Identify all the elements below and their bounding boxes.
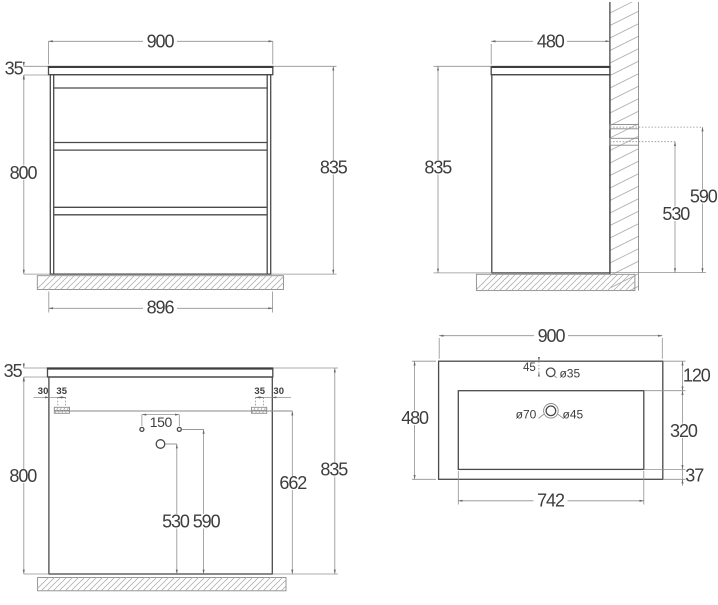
svg-text:35: 35	[254, 386, 265, 397]
svg-text:530 590: 530 590	[162, 512, 220, 532]
svg-text:900: 900	[147, 32, 175, 52]
svg-text:896: 896	[147, 298, 175, 318]
svg-text:742: 742	[537, 491, 565, 511]
svg-text:ø35: ø35	[559, 367, 580, 381]
svg-text:480: 480	[537, 32, 565, 52]
svg-text:ø70: ø70	[516, 407, 537, 421]
svg-text:662: 662	[279, 473, 307, 493]
svg-text:800: 800	[9, 466, 37, 486]
svg-text:800: 800	[10, 163, 38, 183]
svg-text:480: 480	[401, 408, 429, 428]
svg-text:590: 590	[690, 186, 718, 206]
svg-text:150: 150	[150, 414, 173, 430]
svg-text:320: 320	[670, 421, 698, 441]
svg-text:900: 900	[538, 326, 566, 346]
svg-text:530: 530	[662, 204, 690, 224]
svg-text:35: 35	[5, 59, 24, 79]
svg-text:835: 835	[320, 158, 348, 178]
svg-text:30: 30	[38, 386, 49, 397]
svg-text:120: 120	[683, 366, 711, 386]
svg-text:45: 45	[523, 362, 536, 374]
svg-text:835: 835	[320, 460, 348, 480]
svg-text:30: 30	[273, 386, 284, 397]
svg-text:35: 35	[56, 386, 67, 397]
svg-text:35: 35	[4, 361, 23, 381]
svg-text:835: 835	[424, 158, 452, 178]
svg-text:ø45: ø45	[563, 407, 584, 421]
svg-text:37: 37	[685, 466, 704, 486]
